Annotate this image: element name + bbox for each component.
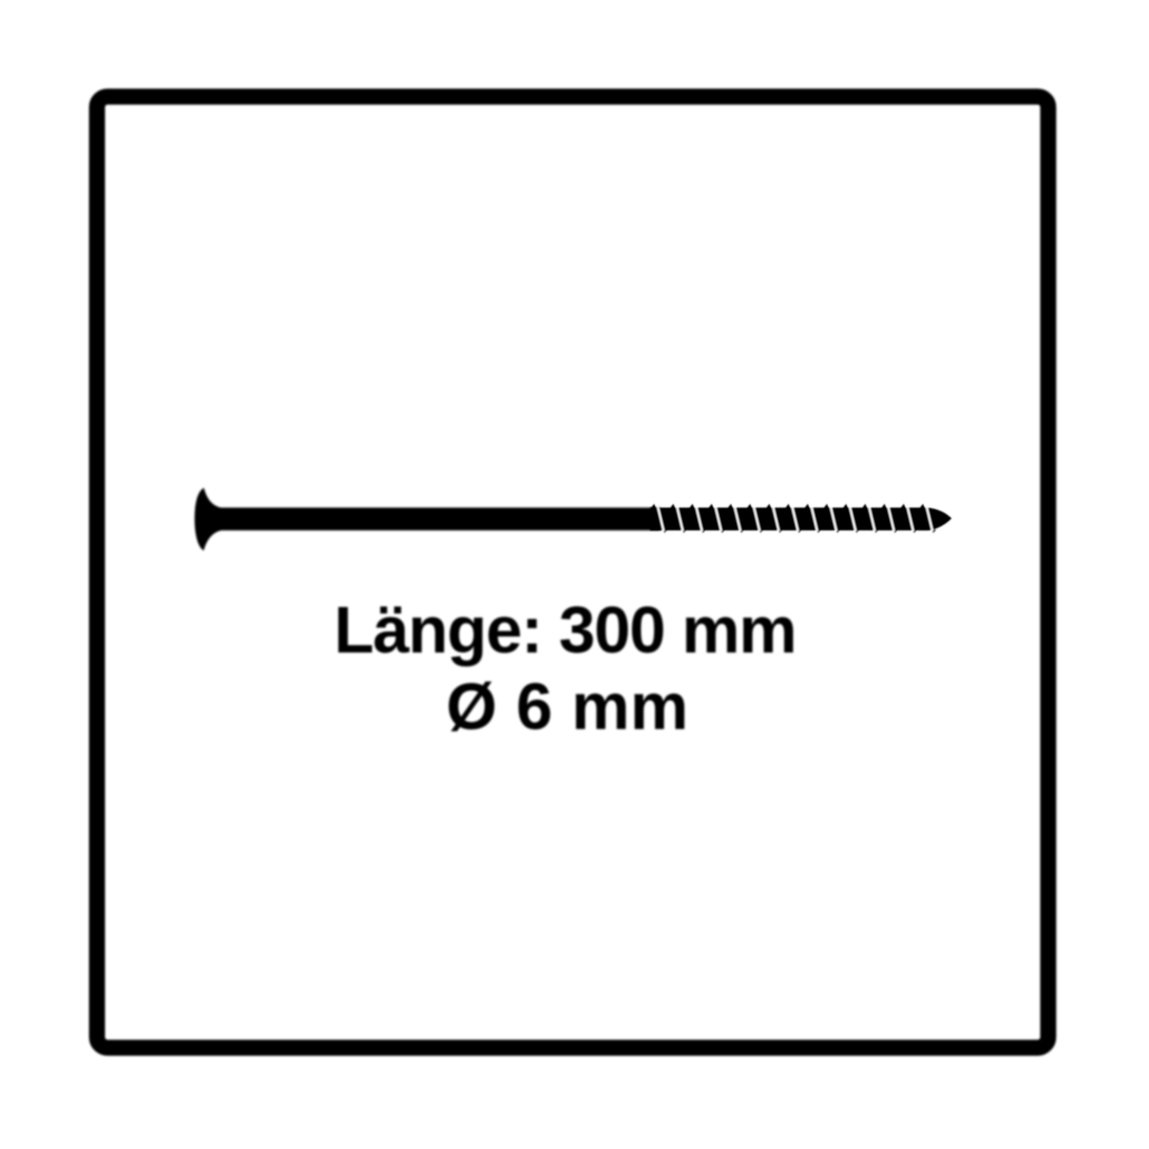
svg-text:Ø 6 mm: Ø 6 mm [446, 670, 689, 743]
svg-text:Länge: 300 mm: Länge: 300 mm [334, 594, 796, 667]
